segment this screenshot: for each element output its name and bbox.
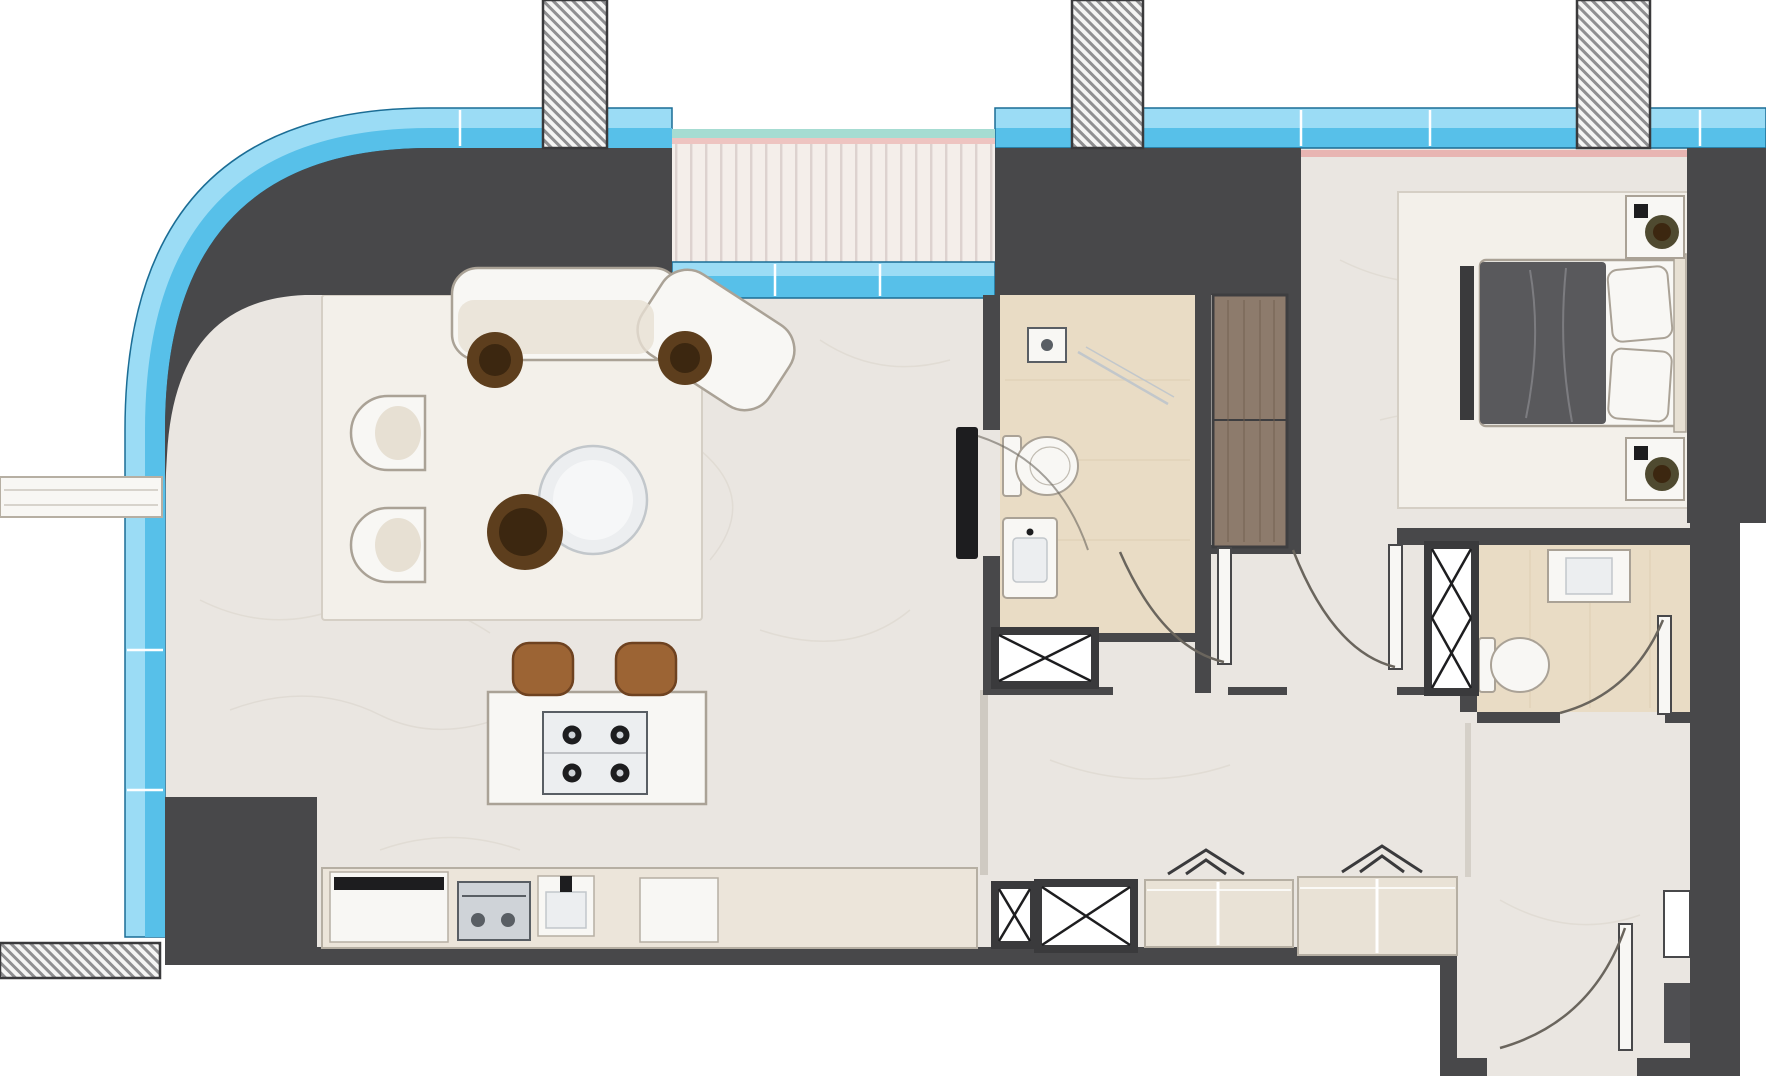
- floor-plant: [487, 494, 563, 570]
- kitchen-counter: [322, 868, 977, 948]
- balcony: [672, 129, 995, 298]
- pillow-2: [1608, 348, 1673, 422]
- entry-cabinet: [1664, 983, 1690, 1043]
- kitchen-island: [488, 692, 706, 804]
- oven: [458, 882, 530, 940]
- duct-shaft-1: [991, 627, 1099, 689]
- bar-stool-2: [616, 643, 676, 695]
- wall-entry-south-b: [1637, 1058, 1740, 1076]
- entry-niche: [1664, 891, 1690, 957]
- column-4-pier: [0, 943, 160, 978]
- dishwasher: [640, 878, 718, 942]
- wall-bottom: [317, 947, 1457, 965]
- wall-bathroom1-east: [1195, 295, 1211, 693]
- armchair-1: [351, 396, 425, 470]
- cabinet-row-2: [1298, 877, 1457, 955]
- column-3: [1577, 0, 1650, 148]
- vanity-2: [1548, 550, 1630, 602]
- entry-seam: [1465, 723, 1471, 877]
- balcony-rail-pink: [672, 138, 995, 144]
- kitchen-sink: [538, 876, 594, 936]
- floor-plan: [0, 0, 1766, 1076]
- balcony-deck: [672, 144, 995, 262]
- toilet-1: [1003, 436, 1078, 496]
- duct-shaft-2: [1424, 541, 1479, 696]
- vanity-1: [1003, 518, 1057, 598]
- bed: [1460, 254, 1686, 432]
- nightstand-1: [1626, 196, 1684, 258]
- duct-shaft-3: [991, 881, 1038, 949]
- headboard: [1674, 254, 1686, 432]
- sofa-plant-1: [467, 332, 523, 388]
- gas-hob: [543, 712, 647, 794]
- wall-block-southwest: [165, 797, 317, 965]
- wall-right-upper: [1687, 148, 1766, 523]
- wall-bathroom1-west-a: [983, 295, 1000, 430]
- cabinet-row-1: [1145, 880, 1293, 947]
- floor-plan-page: [0, 0, 1766, 1076]
- fridge: [330, 872, 448, 942]
- balcony-rail-teal: [672, 129, 995, 138]
- armchair-2: [351, 508, 425, 582]
- nightstand-2: [1626, 438, 1684, 500]
- wall-top-center: [995, 148, 1301, 295]
- wardrobe: [1213, 295, 1287, 547]
- pillow-1: [1607, 266, 1673, 343]
- column-1: [543, 0, 607, 148]
- bed-blanket: [1480, 262, 1606, 424]
- bed-bench: [1460, 266, 1474, 420]
- wall-hall-b: [1228, 687, 1287, 695]
- wall-bedroom-west: [1287, 295, 1301, 545]
- toilet-2: [1479, 638, 1549, 692]
- partition-seam: [980, 690, 988, 875]
- exterior-fin: [0, 477, 162, 517]
- column-2: [1072, 0, 1143, 148]
- wall-bathroom2-south-a: [1477, 712, 1560, 723]
- bar-stool-1: [513, 643, 573, 695]
- wall-right-lower: [1690, 523, 1740, 1076]
- wall-entry-south-a: [1440, 1058, 1487, 1076]
- sofa-plant-2: [658, 331, 712, 385]
- duct-shaft-4: [1034, 879, 1138, 953]
